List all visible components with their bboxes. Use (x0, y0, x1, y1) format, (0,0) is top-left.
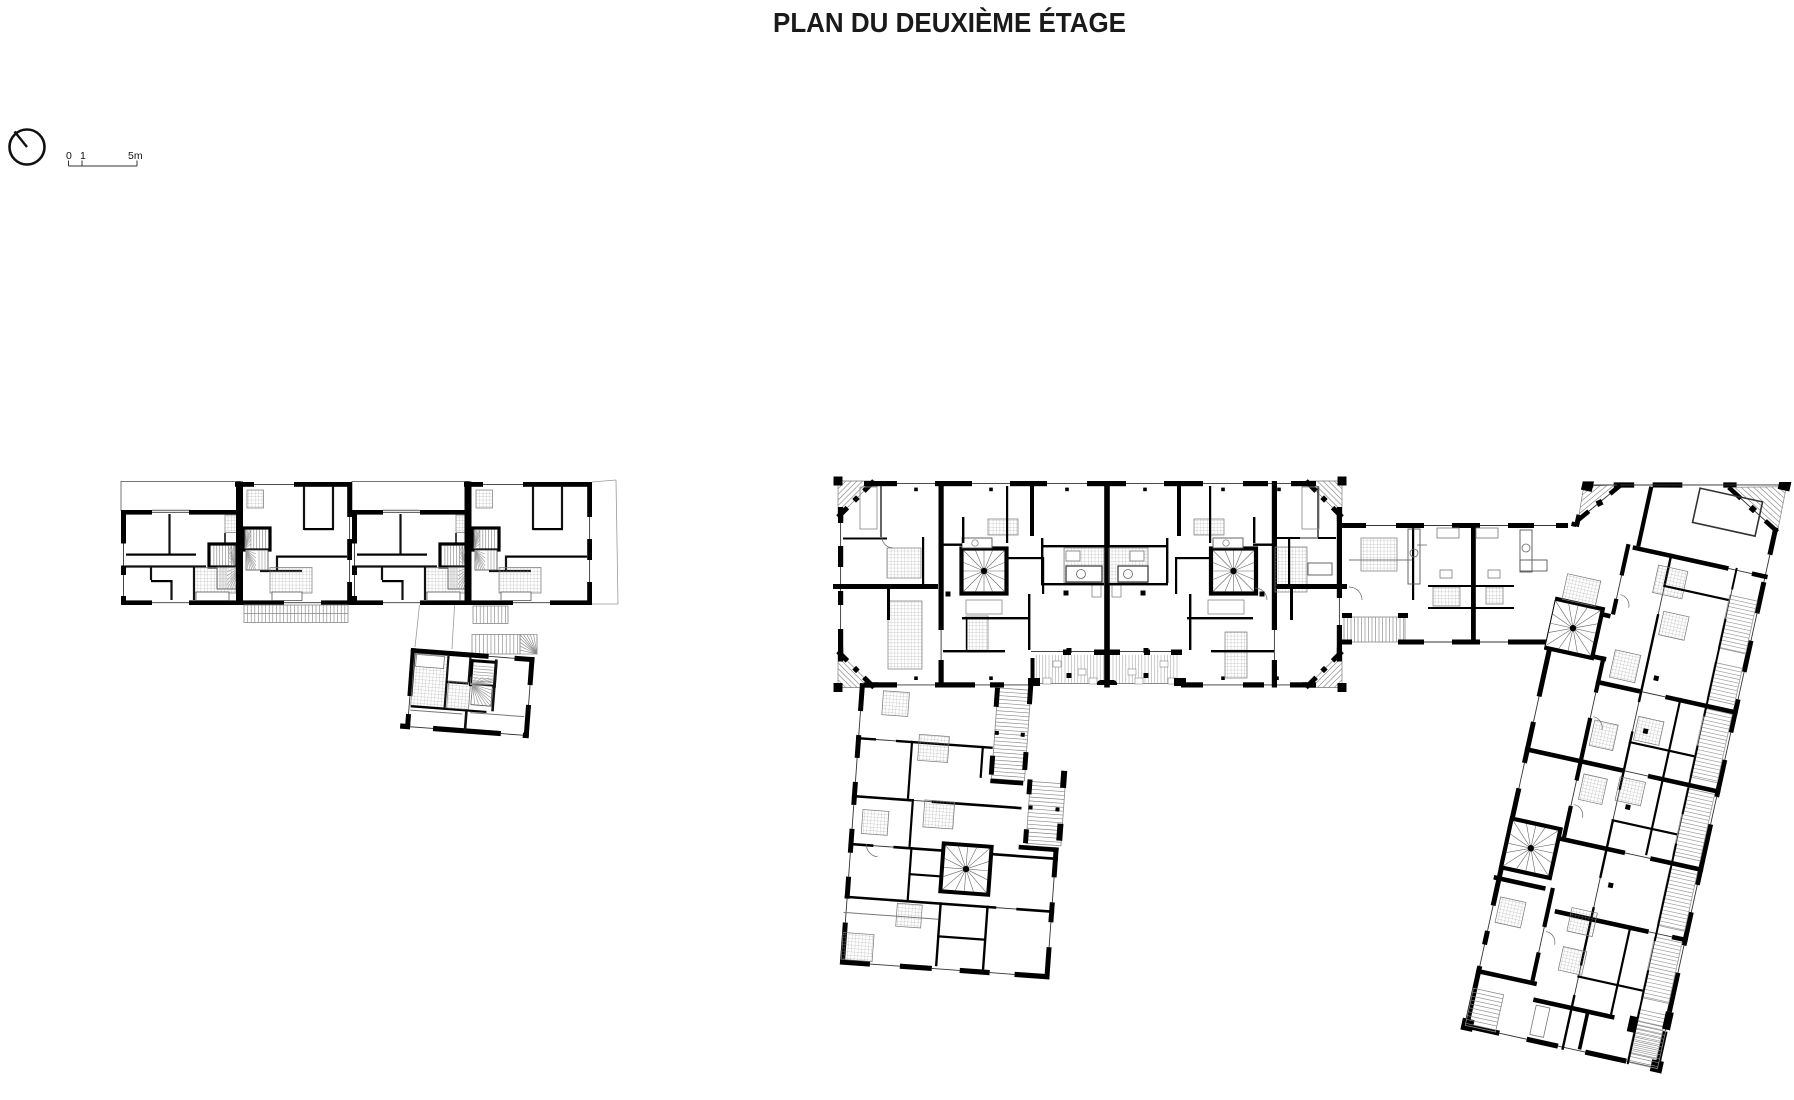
svg-text:5m: 5m (128, 150, 143, 162)
svg-text:1: 1 (80, 150, 86, 162)
svg-text:0: 0 (66, 150, 72, 162)
svg-text:PLAN DU DEUXIÈME ÉTAGE: PLAN DU DEUXIÈME ÉTAGE (773, 7, 1126, 38)
